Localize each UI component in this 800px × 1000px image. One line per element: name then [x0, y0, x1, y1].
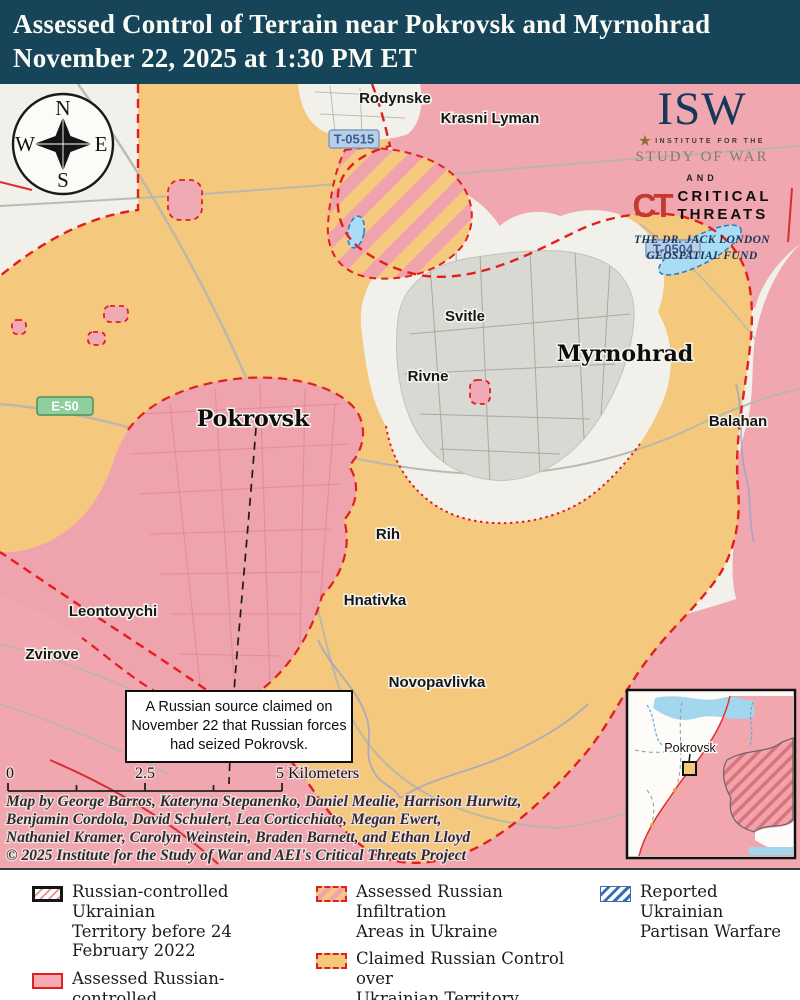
map-label-rih: Rih — [376, 526, 400, 543]
road-label-e50: E-50 — [51, 399, 78, 414]
prewar-swatch — [32, 886, 63, 902]
credit-line-3: Nathaniel Kramer, Carolyn Weinstein, Bra… — [5, 829, 470, 846]
inset-pokrovsk-label: Pokrovsk — [664, 741, 716, 755]
scale-mid: 2.5 — [135, 765, 155, 782]
map-date: November 22, 2025 at 1:30 PM ET — [13, 41, 800, 75]
partisan-swatch — [600, 886, 631, 902]
map-label-myrnohrad: Myrnohrad — [557, 341, 694, 367]
credit-line-1: Map by George Barros, Kateryna Stepanenk… — [5, 793, 521, 810]
isw-map-page: Assessed Control of Terrain near Pokrovs… — [0, 0, 800, 1000]
annotation-line-1: A Russian source claimed on — [130, 698, 348, 717]
map-canvas: T-0515 T-0504 E-50 Rodynske Krasni Lyman… — [0, 84, 800, 868]
road-label-t0515: T-0515 — [334, 132, 374, 147]
map-label-balahan: Balahan — [709, 413, 767, 430]
legend-item-assessed-control: Assessed Russian-controlled Ukrainian Te… — [32, 969, 304, 1000]
scale-end: 5 Kilometers — [276, 765, 359, 782]
annotation-line-3: had seized Pokrovsk. — [130, 736, 348, 755]
map-label-rivne: Rivne — [408, 368, 449, 385]
legend-item-infiltration: Assessed Russian Infiltration Areas in U… — [316, 882, 588, 941]
compass-s: S — [57, 168, 69, 192]
map-credits: Map by George Barros, Kateryna Stepanenk… — [5, 793, 521, 864]
map-label-krasni-lyman: Krasni Lyman — [441, 110, 540, 127]
map-label-pokrovsk: Pokrovsk — [197, 406, 310, 432]
map-label-zvirove: Zvirove — [25, 646, 78, 663]
legend-item-prewar: Russian-controlled Ukrainian Territory b… — [32, 882, 304, 961]
compass-n: N — [55, 96, 70, 120]
map-svg: T-0515 T-0504 E-50 Rodynske Krasni Lyman… — [0, 84, 800, 868]
road-badge-t0504: T-0504 — [646, 240, 700, 258]
assessed-control-swatch — [32, 973, 63, 989]
map-label-leontovychi: Leontovychi — [69, 603, 157, 620]
map-label-novopavlivka: Novopavlivka — [389, 674, 486, 691]
credit-line-4: © 2025 Institute for the Study of War an… — [6, 847, 467, 864]
infiltration-swatch — [316, 886, 347, 902]
scale-zero: 0 — [6, 765, 14, 782]
compass-rose: N E S W — [13, 94, 113, 194]
legend-item-partisan: Reported Ukrainian Partisan Warfare — [600, 882, 795, 941]
legend: Russian-controlled Ukrainian Territory b… — [0, 868, 800, 1000]
map-label-svitle: Svitle — [445, 308, 485, 325]
road-badge-e50: E-50 — [37, 397, 93, 415]
credit-line-2: Benjamin Cordola, David Schulert, Lea Co… — [5, 811, 441, 828]
legend-item-claimed-control: Claimed Russian Control over Ukrainian T… — [316, 949, 588, 1000]
road-label-t0504: T-0504 — [653, 242, 694, 257]
title-bar: Assessed Control of Terrain near Pokrovs… — [0, 0, 800, 84]
map-label-rodynske: Rodynske — [359, 90, 431, 107]
road-badge-t0515: T-0515 — [329, 130, 379, 148]
map-title: Assessed Control of Terrain near Pokrovs… — [13, 7, 800, 41]
inset-map: Pokrovsk — [627, 690, 795, 858]
annotation-box: A Russian source claimed on November 22 … — [125, 690, 353, 763]
compass-w: W — [15, 132, 35, 156]
annotation-line-2: November 22 that Russian forces — [130, 717, 348, 736]
claimed-control-swatch — [316, 953, 347, 969]
map-label-hnativka: Hnativka — [344, 592, 407, 609]
inset-pokrovsk-marker — [683, 762, 696, 775]
compass-e: E — [95, 132, 108, 156]
